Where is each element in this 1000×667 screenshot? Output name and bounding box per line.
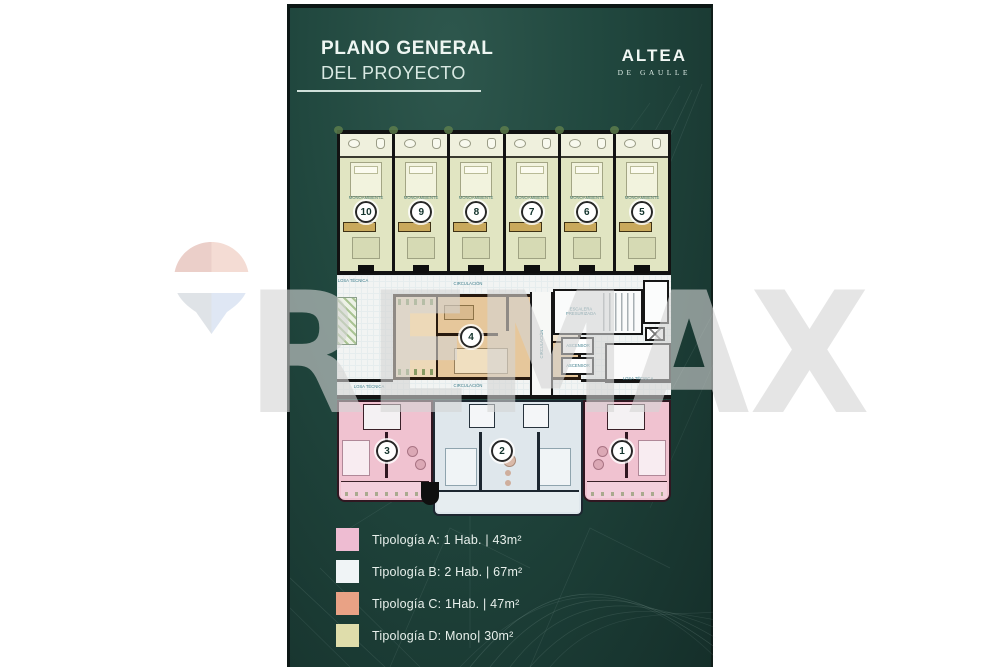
toilet-icon	[652, 138, 661, 149]
bed	[571, 162, 603, 197]
legend-item-b: Tipología B: 2 Hab. | 67m²	[336, 560, 522, 583]
circulacion-label: CIRCULACIÓN	[454, 282, 483, 286]
bathroom	[450, 134, 502, 158]
bed	[454, 348, 508, 374]
legend-item-c: Tipología C: 1Hab. | 47m²	[336, 592, 522, 615]
unit-number-badge: 10	[355, 201, 377, 223]
dinette	[628, 237, 656, 259]
kitchen-counter	[453, 222, 486, 232]
mono-units-row: MONOAMBIENTE 10 MONOAMBIENTE 9 MONOAMBIE…	[337, 130, 671, 275]
remax-balloon-icon	[173, 242, 250, 335]
losa-tecnica-label: LOSA TÉCNICA	[354, 385, 385, 389]
unit-10: MONOAMBIENTE 10	[337, 134, 392, 271]
plants	[398, 299, 434, 305]
bathroom	[340, 134, 392, 158]
bed	[626, 162, 658, 197]
circulation-band: LOSA TÉCNICA CIRCULACIÓN 4 CIRC	[337, 275, 671, 395]
unit-number-badge: 8	[465, 201, 487, 223]
wall	[479, 432, 482, 494]
losa-tecnica-label: LOSA TÉCNICA	[338, 279, 369, 283]
kitchen-counter	[619, 222, 652, 232]
toilet-icon	[542, 138, 551, 149]
brand-logo: ALTEA DE GAULLE	[618, 46, 691, 77]
unit-number-badge: 1	[611, 440, 633, 462]
bed	[460, 162, 492, 197]
door	[358, 265, 374, 273]
bathroom	[561, 134, 613, 158]
legend-swatch-c	[336, 592, 359, 615]
bed	[516, 162, 548, 197]
unit-9: MONOAMBIENTE 9	[392, 134, 447, 271]
sink-icon	[569, 139, 581, 148]
kitchen-counter	[398, 222, 431, 232]
legend-label-a: Tipología A: 1 Hab. | 43m²	[372, 533, 522, 547]
legend-label-d: Tipología D: Mono| 30m²	[372, 629, 513, 643]
sofa	[415, 459, 426, 470]
bed	[539, 448, 571, 486]
toilet-icon	[597, 138, 606, 149]
legend-item-d: Tipología D: Mono| 30m²	[336, 624, 522, 647]
legend-item-a: Tipología A: 1 Hab. | 43m²	[336, 528, 522, 551]
brochure-panel: PLANO GENERAL DEL PROYECTO ALTEA DE GAUL…	[287, 4, 713, 667]
typology-legend: Tipología A: 1 Hab. | 43m² Tipología B: …	[336, 528, 522, 656]
unit-number-badge: 9	[410, 201, 432, 223]
unit-1: 1	[583, 400, 671, 502]
escalera-label: ESCALERA PRESURIZADA	[562, 308, 600, 316]
unit-7: MONOAMBIENTE 7	[503, 134, 558, 271]
shaft	[645, 327, 665, 341]
toilet-icon	[487, 138, 496, 149]
bathroom	[469, 404, 495, 428]
legend-label-b: Tipología B: 2 Hab. | 67m²	[372, 565, 522, 579]
title-line-2: DEL PROYECTO	[321, 63, 493, 84]
sofa	[593, 459, 604, 470]
title-underline	[297, 90, 481, 92]
unit-number-badge: 2	[491, 440, 513, 462]
door	[413, 265, 429, 273]
wall	[537, 432, 540, 494]
circulacion-label: CIRCULACIÓN	[454, 384, 483, 388]
vertical-corridor: CIRCULACIÓN	[530, 292, 553, 395]
unit-number-badge: 7	[521, 201, 543, 223]
sofa	[407, 446, 418, 457]
dinette	[573, 237, 601, 259]
kitchen-counter	[343, 222, 376, 232]
bathroom	[523, 404, 549, 428]
legend-swatch-d	[336, 624, 359, 647]
page: { "header": { "title_line1": "PLANO GENE…	[0, 0, 1000, 667]
bed	[405, 162, 437, 197]
unit-6: MONOAMBIENTE 6	[558, 134, 613, 271]
door	[468, 265, 484, 273]
bed	[350, 162, 382, 197]
dinette	[407, 237, 435, 259]
door	[634, 265, 650, 273]
page-title: PLANO GENERAL DEL PROYECTO	[321, 38, 493, 84]
bed	[342, 440, 370, 476]
elevator-2: ASCENSOR	[561, 357, 594, 375]
balcony	[341, 481, 429, 498]
balcony	[437, 490, 579, 512]
entry-stair	[421, 482, 439, 505]
dinette	[518, 237, 546, 259]
wall	[337, 379, 393, 382]
sink-icon	[514, 139, 526, 148]
legend-label-c: Tipología C: 1Hab. | 47m²	[372, 597, 519, 611]
toilet-icon	[376, 138, 385, 149]
lower-units-row: 3 2 1	[337, 395, 671, 520]
ascensor-label: ASCENSOR	[566, 344, 590, 348]
elevator-1: ASCENSOR	[561, 337, 594, 355]
terrace	[396, 297, 438, 377]
kitchen-counter	[509, 222, 542, 232]
legend-swatch-a	[336, 528, 359, 551]
unit-number-badge: 5	[631, 201, 653, 223]
door	[579, 265, 595, 273]
sink-icon	[404, 139, 416, 148]
title-line-1: PLANO GENERAL	[321, 38, 493, 60]
service-room	[643, 280, 669, 324]
unit-number-badge: 3	[376, 440, 398, 462]
bathroom	[607, 404, 645, 430]
chair	[505, 480, 511, 486]
dinette	[462, 237, 490, 259]
unit-3: 3	[337, 400, 433, 502]
plants	[398, 369, 434, 375]
bathroom	[506, 134, 558, 158]
sink-icon	[459, 139, 471, 148]
wall	[506, 297, 509, 331]
unit-number-badge: 4	[460, 326, 482, 348]
balcony	[587, 481, 667, 498]
table	[444, 305, 474, 320]
brand-logo-text: ALTEA	[618, 46, 691, 66]
pressurized-stairs: ESCALERA PRESURIZADA	[553, 289, 643, 335]
unit-8: MONOAMBIENTE 8	[447, 134, 502, 271]
floor-plan: MONOAMBIENTE 10 MONOAMBIENTE 9 MONOAMBIE…	[337, 130, 671, 516]
unit-2: 2	[433, 400, 583, 516]
bathroom	[395, 134, 447, 158]
losa-tecnica-area: LOSA TÉCNICA	[605, 343, 671, 383]
planting-strip	[337, 297, 357, 345]
bathroom	[616, 134, 668, 158]
sofa	[597, 446, 608, 457]
stair-treads	[603, 293, 639, 331]
chair	[505, 470, 511, 476]
bed	[638, 440, 666, 476]
dinette	[352, 237, 380, 259]
kitchen-counter	[564, 222, 597, 232]
sink-icon	[348, 139, 360, 148]
unit-number-badge: 6	[576, 201, 598, 223]
circulacion-vertical-label: CIRCULACIÓN	[539, 329, 543, 358]
sink-icon	[624, 139, 636, 148]
bathroom	[363, 404, 401, 430]
wall	[581, 379, 671, 382]
brand-logo-subtitle: DE GAULLE	[618, 68, 691, 77]
door	[524, 265, 540, 273]
bed	[445, 448, 477, 486]
legend-swatch-b	[336, 560, 359, 583]
toilet-icon	[432, 138, 441, 149]
unit-5: MONOAMBIENTE 5	[613, 134, 671, 271]
ascensor-label: ASCENSOR	[566, 364, 590, 368]
